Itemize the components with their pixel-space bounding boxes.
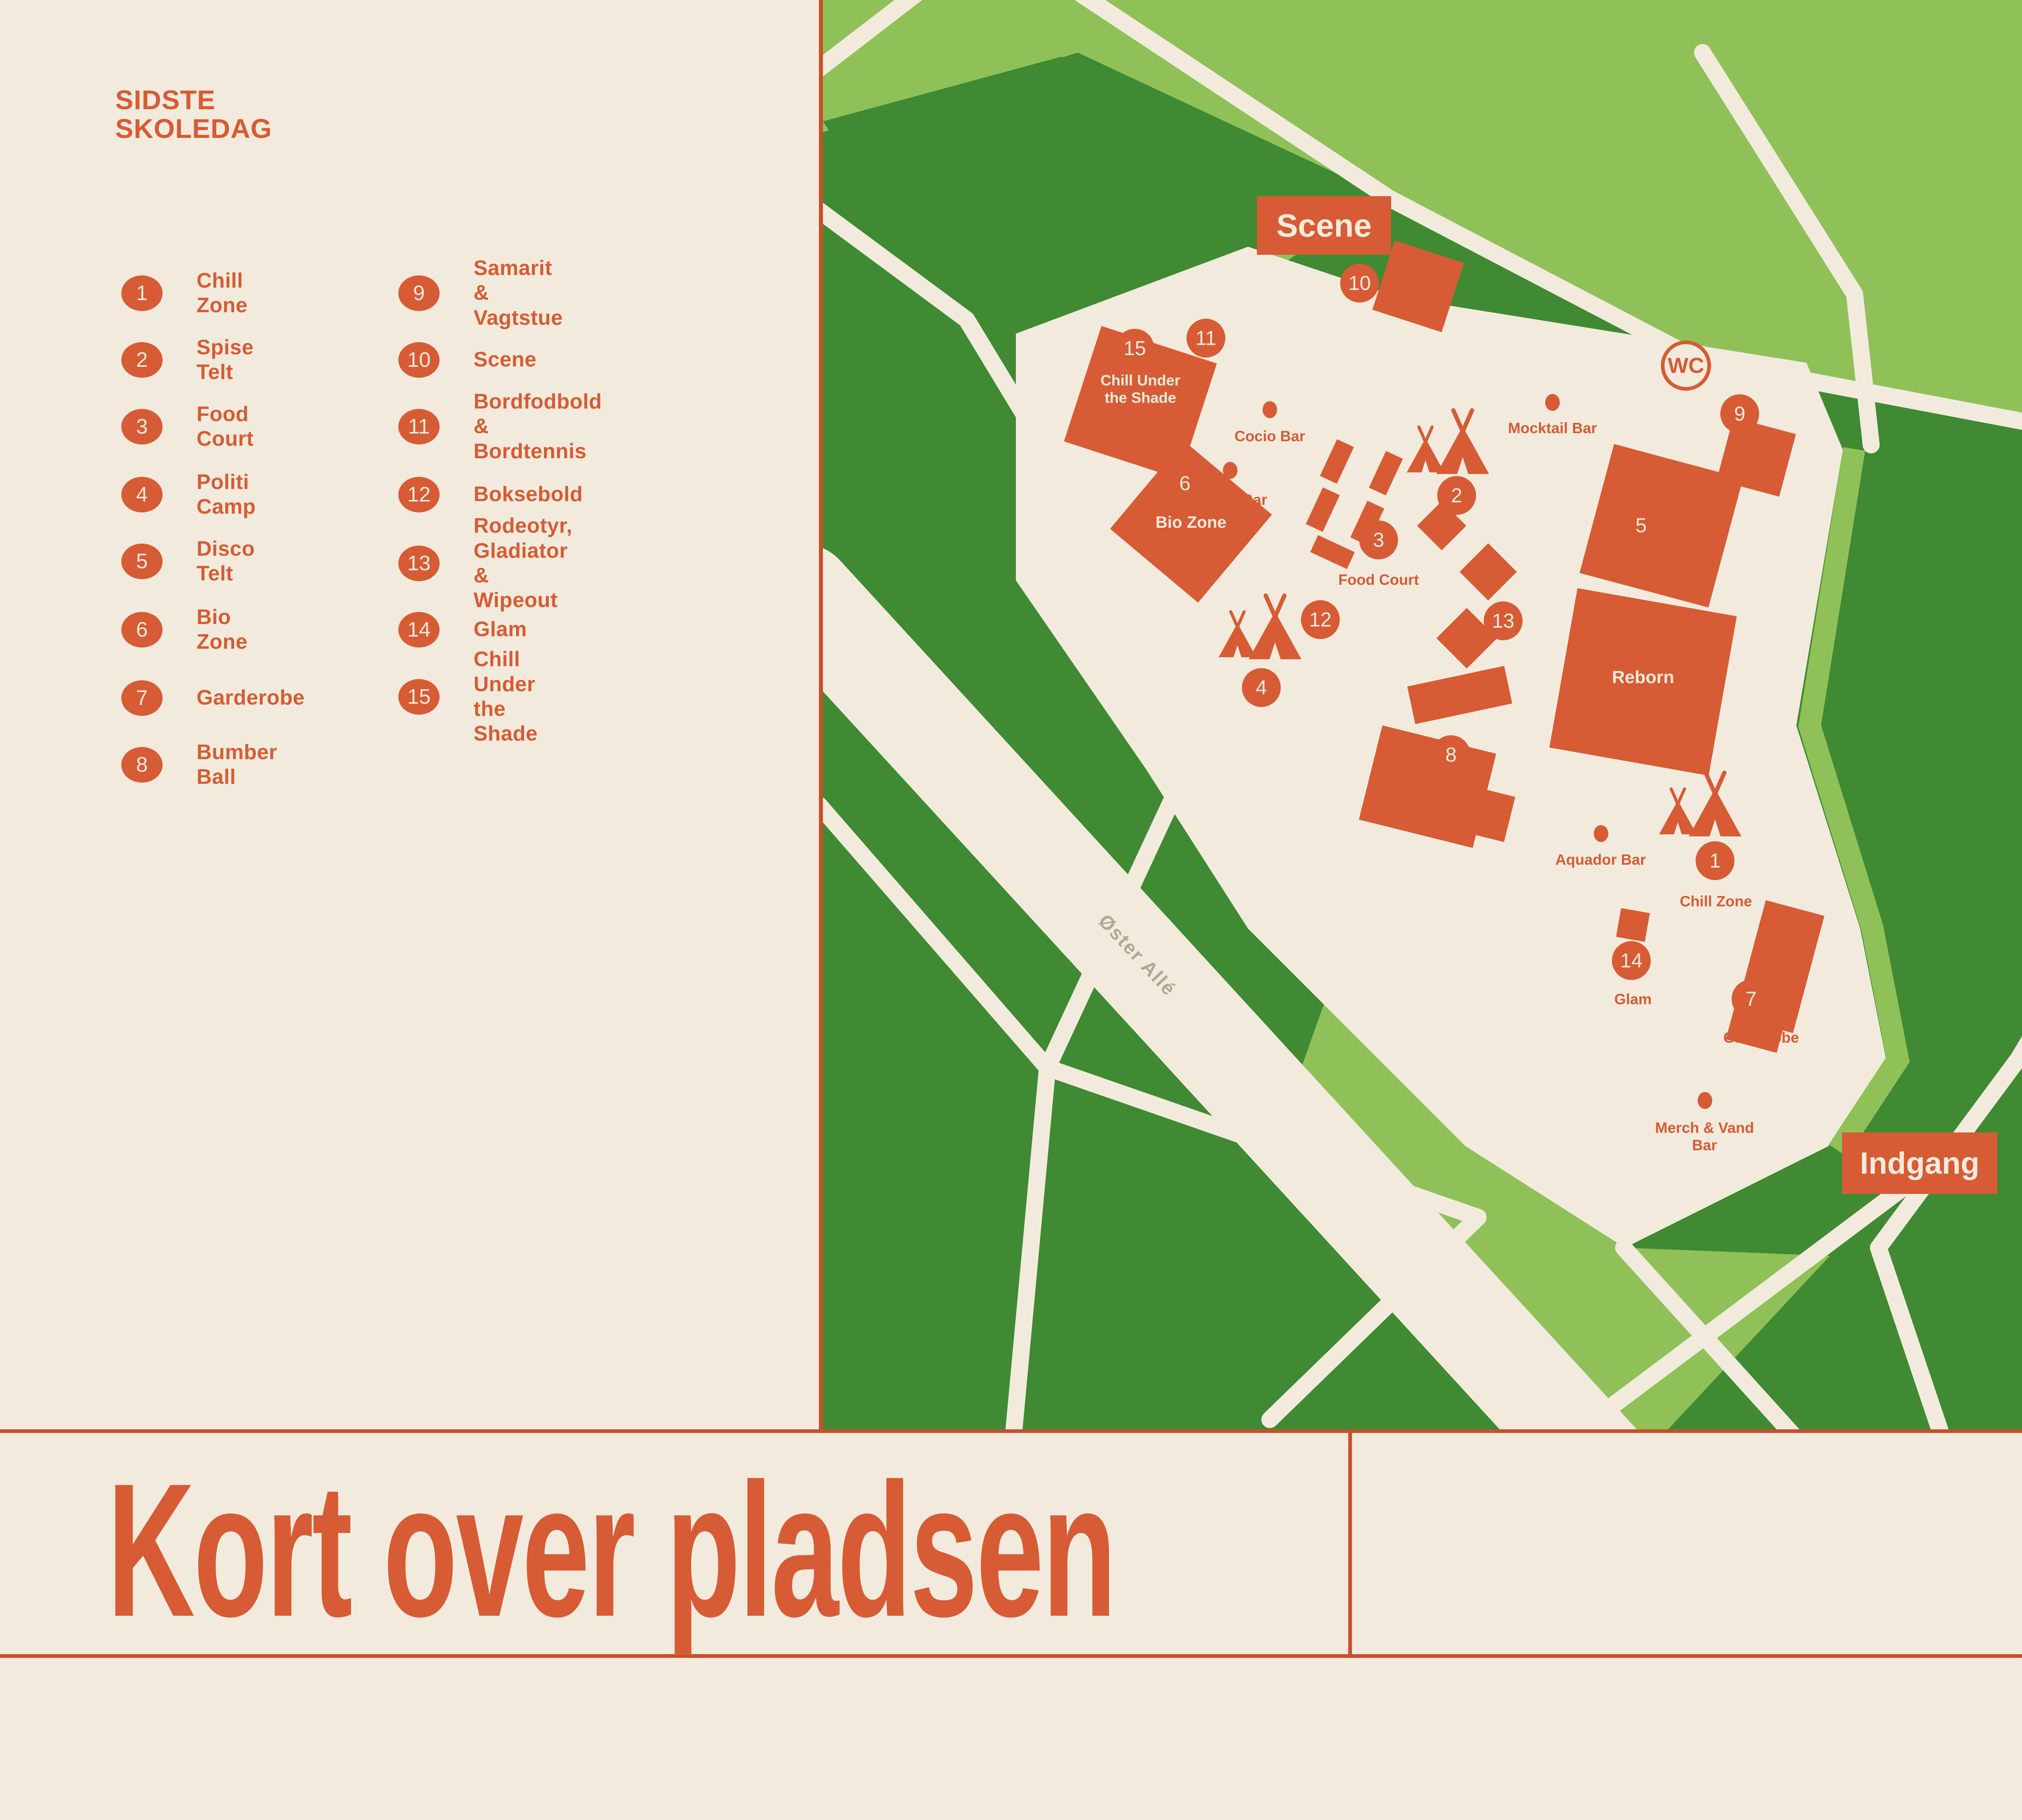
legend-label-15: Chill Under the Shade bbox=[474, 647, 538, 746]
band-vertical-divider bbox=[1348, 1429, 1352, 1658]
food-court-label: Food Court bbox=[1290, 571, 1468, 589]
legend-item-7: 7Garderobe bbox=[121, 676, 305, 720]
legend-item-12: 12Boksebold bbox=[398, 472, 583, 517]
map-marker-15: 15 bbox=[1115, 329, 1154, 368]
legend-item-2: 2Spise Telt bbox=[121, 338, 254, 382]
disco-telt-label: Disco Telt bbox=[1557, 555, 1735, 572]
legend-badge-7: 7 bbox=[121, 680, 163, 716]
legend-label-7: Garderobe bbox=[197, 686, 305, 710]
merch-bar-label: Merch & Vand Bar bbox=[1616, 1120, 1794, 1154]
legend-label-10: Scene bbox=[474, 347, 537, 372]
glam-label: Glam bbox=[1544, 991, 1722, 1008]
legend-badge-14: 14 bbox=[398, 612, 440, 648]
map-marker-7: 7 bbox=[1732, 980, 1770, 1018]
legend-badge-10: 10 bbox=[398, 342, 440, 378]
map-marker-10: 10 bbox=[1340, 264, 1379, 303]
legend-label-9: Samarit & Vagtstue bbox=[474, 256, 563, 330]
legend-badge-12: 12 bbox=[398, 477, 440, 512]
legend-label-8: Bumber Ball bbox=[197, 740, 277, 790]
legend-badge-9: 9 bbox=[398, 275, 440, 311]
legend-badge-1: 1 bbox=[121, 275, 163, 311]
legend-label-14: Glam bbox=[474, 617, 527, 642]
legend-badge-8: 8 bbox=[121, 747, 163, 783]
legend-label-13: Rodeotyr, Gladiator & Wipeout bbox=[474, 514, 572, 613]
legend-item-8: 8Bumber Ball bbox=[121, 743, 277, 787]
map-marker-13: 13 bbox=[1484, 601, 1523, 640]
entrance-label-box: Indgang bbox=[1842, 1132, 1997, 1194]
bio-zone-building-label: Bio Zone bbox=[1102, 513, 1280, 532]
merch-bar-dot bbox=[1698, 1092, 1712, 1109]
legend-item-9: 9Samarit & Vagtstue bbox=[398, 271, 563, 315]
logo-line-1: SIDSTE bbox=[115, 86, 272, 114]
map-marker-14: 14 bbox=[1612, 941, 1651, 980]
scene-label: Scene bbox=[1276, 207, 1372, 244]
legend-badge-2: 2 bbox=[121, 342, 163, 378]
cocio-bar-dot bbox=[1263, 401, 1277, 418]
legend-badge-6: 6 bbox=[121, 612, 163, 648]
chill-under-shade-building-label: Chill Under the Shade bbox=[1051, 372, 1229, 406]
legend-label-12: Boksebold bbox=[474, 482, 583, 507]
map-marker-12: 12 bbox=[1301, 600, 1340, 639]
map-marker-2: 2 bbox=[1437, 476, 1476, 515]
map-marker-11: 11 bbox=[1187, 319, 1225, 358]
legend-label-11: Bordfodbold & Bordtennis bbox=[474, 389, 602, 464]
garderobe-label: Garderobe bbox=[1672, 1029, 1850, 1047]
legend-label-3: Food Court bbox=[197, 402, 254, 452]
legend-item-4: 4Politi Camp bbox=[121, 472, 256, 517]
cocio-bar-label: Cocio Bar bbox=[1181, 428, 1359, 445]
entrance-label: Indgang bbox=[1860, 1146, 1980, 1181]
map-marker-8: 8 bbox=[1432, 735, 1470, 774]
map-artwork bbox=[819, 0, 2022, 1429]
snack-bar-label: Snack Bar bbox=[1142, 491, 1320, 509]
band-top-border bbox=[0, 1429, 2022, 1433]
mocktail-bar-label: Mocktail Bar bbox=[1464, 420, 1641, 437]
legend-label-5: Disco Telt bbox=[197, 537, 255, 586]
legend-label-4: Politi Camp bbox=[197, 470, 256, 520]
legend-label-2: Spise Telt bbox=[197, 335, 254, 385]
scene-label-box: Scene bbox=[1257, 196, 1391, 255]
festival-map-poster: SIDSTE SKOLEDAG 1Chill Zone 2Spise Telt … bbox=[0, 0, 2022, 1820]
site-map: Scene Indgang WC Øster Allé Parken 1 2 3… bbox=[819, 0, 2022, 1429]
map-marker-1: 1 bbox=[1696, 841, 1734, 880]
aquador-bar-dot bbox=[1594, 825, 1608, 842]
snack-bar-dot bbox=[1223, 462, 1237, 479]
logo: SIDSTE SKOLEDAG bbox=[115, 86, 272, 143]
legend-badge-11: 11 bbox=[398, 409, 440, 444]
legend-label-6: Bio Zone bbox=[197, 605, 247, 655]
page-title: Kort over pladsen bbox=[107, 1455, 1115, 1645]
reborn-building-label: Reborn bbox=[1554, 667, 1732, 688]
legend-item-1: 1Chill Zone bbox=[121, 271, 247, 315]
legend-item-11: 11Bordfodbold & Bordtennis bbox=[398, 404, 602, 449]
legend-badge-5: 5 bbox=[121, 544, 163, 579]
wc-label: WC bbox=[1668, 353, 1704, 378]
logo-line-2: SKOLEDAG bbox=[115, 114, 272, 143]
legend-item-10: 10Scene bbox=[398, 338, 537, 382]
mocktail-bar-dot bbox=[1545, 394, 1560, 411]
legend-badge-4: 4 bbox=[121, 477, 163, 512]
legend-item-15: 15Chill Under the Shade bbox=[398, 675, 538, 719]
wc-icon: WC bbox=[1661, 341, 1711, 391]
map-marker-5: 5 bbox=[1622, 506, 1660, 545]
legend-item-6: 6Bio Zone bbox=[121, 607, 247, 652]
legend-item-14: 14Glam bbox=[398, 607, 527, 652]
legend-item-5: 5Disco Telt bbox=[121, 539, 255, 584]
legend-badge-3: 3 bbox=[121, 409, 163, 444]
map-marker-3: 3 bbox=[1359, 521, 1398, 559]
map-marker-4: 4 bbox=[1242, 668, 1281, 707]
chill-zone-label: Chill Zone bbox=[1627, 893, 1805, 910]
map-marker-9: 9 bbox=[1720, 394, 1759, 433]
legend-item-13: 13Rodeotyr, Gladiator & Wipeout bbox=[398, 541, 572, 586]
legend-item-3: 3Food Court bbox=[121, 404, 254, 449]
aquador-bar-label: Aquador Bar bbox=[1512, 851, 1690, 869]
legend-badge-15: 15 bbox=[398, 679, 440, 715]
legend-badge-13: 13 bbox=[398, 546, 440, 581]
legend-label-1: Chill Zone bbox=[197, 269, 247, 318]
